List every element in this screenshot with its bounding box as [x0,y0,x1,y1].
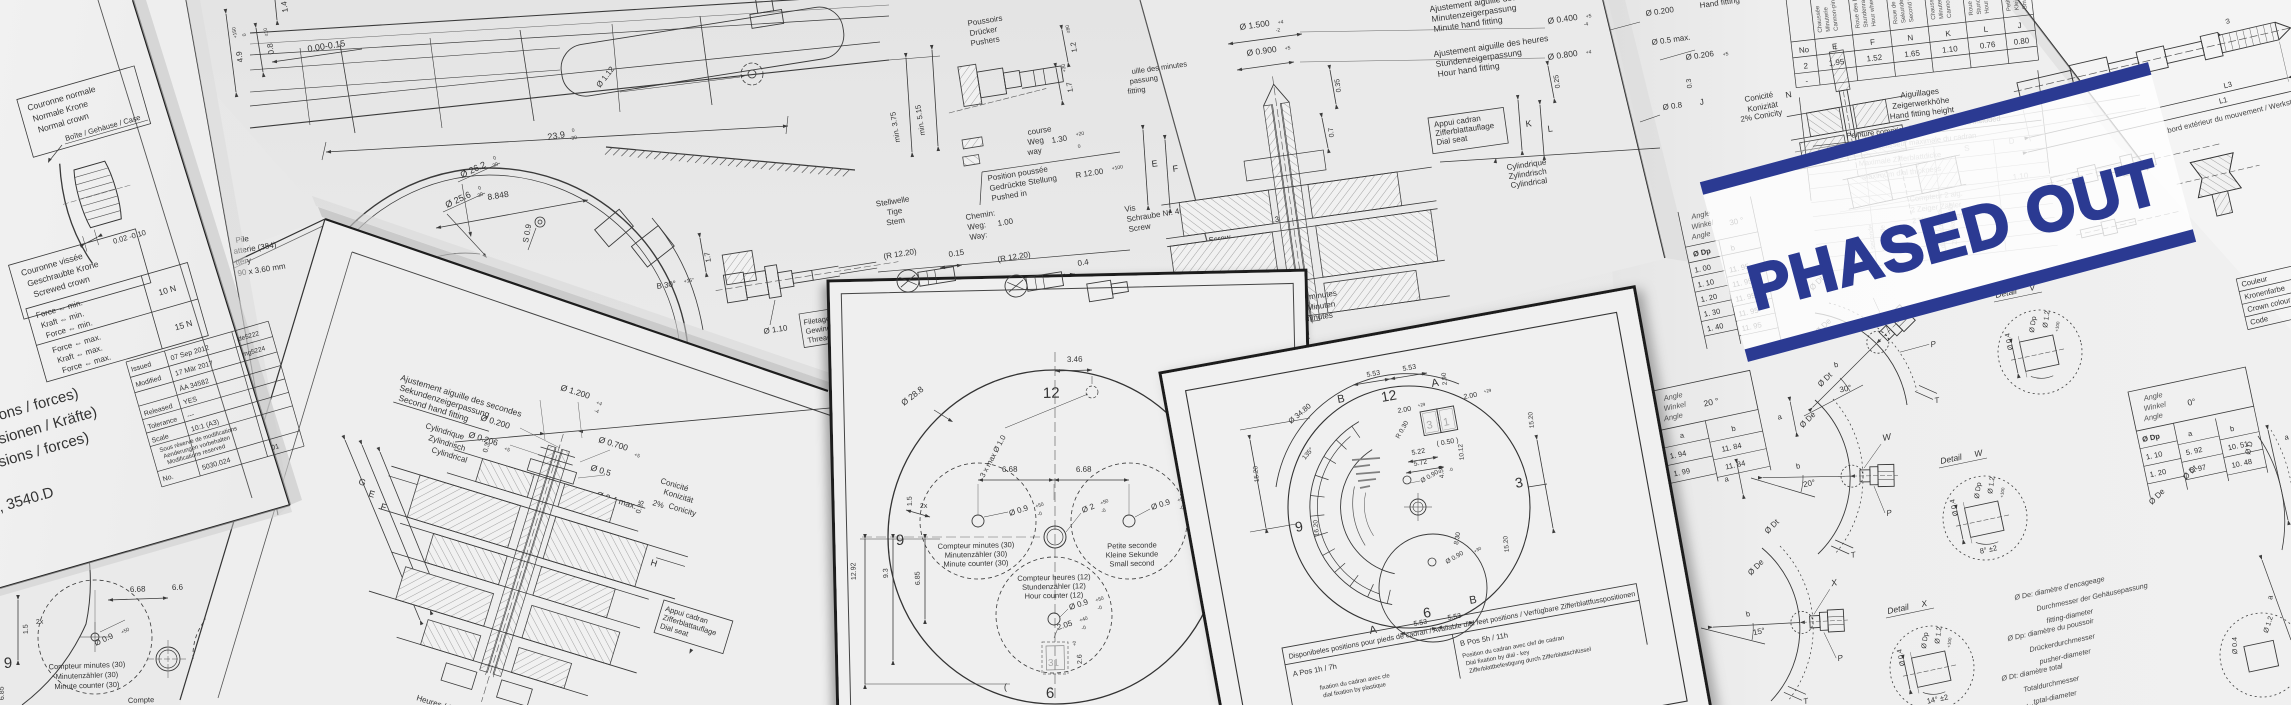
svg-text:9: 9 [896,532,905,549]
svg-text:1.52: 1.52 [1866,53,1883,64]
svg-text:Compte: Compte [128,695,155,705]
svg-text:12: 12 [1043,385,1060,402]
svg-text:4.9: 4.9 [234,50,245,63]
svg-text:E: E [1832,42,1838,52]
svg-text:Hour counter (12): Hour counter (12) [1024,590,1083,600]
svg-text:+4: +4 [1277,19,1284,26]
svg-text:Minute counter (30): Minute counter (30) [943,558,1009,568]
svg-text:2x: 2x [920,503,928,510]
svg-text:6.85: 6.85 [0,686,6,700]
svg-text:0.8: 0.8 [265,42,276,55]
svg-text:Small second: Small second [1109,558,1154,568]
svg-text:6.6: 6.6 [172,583,184,592]
svg-text:3.46: 3.46 [1067,355,1083,364]
svg-text:0.76: 0.76 [1979,40,1996,51]
svg-text:+5: +5 [1284,45,1291,52]
svg-text:1.10: 1.10 [1942,44,1959,55]
svg-text:9.3: 9.3 [883,568,890,578]
svg-text:0.80: 0.80 [2013,36,2030,47]
svg-text:1.95: 1.95 [1828,57,1845,68]
svg-text:6.68: 6.68 [1076,465,1092,474]
svg-text:2.6: 2.6 [1077,654,1084,664]
svg-text:(: ( [1004,682,1007,692]
svg-text:6.85: 6.85 [915,571,922,585]
svg-text:Vis: Vis [1124,203,1136,214]
svg-text:0.4: 0.4 [1077,257,1090,268]
svg-text:1.4: 1.4 [279,0,290,13]
svg-text:+4: +4 [1585,49,1592,56]
svg-text:12: 12 [1380,386,1398,405]
svg-text:+5: +5 [1585,13,1592,20]
svg-text:+5: +5 [1722,51,1729,58]
svg-text:No: No [1798,45,1810,55]
svg-text:1.5: 1.5 [23,624,30,634]
svg-text:1.65: 1.65 [1904,48,1921,59]
svg-text:0.3: 0.3 [1686,78,1694,89]
svg-text:6.68: 6.68 [1002,465,1018,474]
svg-text:Petite: Petite [2005,0,2013,11]
svg-text:Kleine: Kleine [2013,0,2021,10]
svg-text:0.7: 0.7 [1328,127,1336,138]
svg-text:Small: Small [2021,0,2029,10]
svg-text:1.7: 1.7 [1064,81,1075,93]
svg-text:2.90: 2.90 [1441,372,1449,386]
svg-text:31: 31 [1048,658,1060,669]
svg-text:Ø 0.4: Ø 0.4 [2232,637,2240,654]
svg-text:1.2: 1.2 [1068,41,1079,53]
svg-text:6.68: 6.68 [130,584,146,594]
svg-text:12.92: 12.92 [850,562,858,580]
svg-text:+0: +0 [1072,640,1077,646]
svg-text:2x: 2x [36,619,44,626]
svg-text:1.5: 1.5 [907,496,914,506]
svg-text:9: 9 [4,655,13,672]
svg-text:4.50: 4.50 [1438,465,1446,479]
svg-text:6: 6 [1046,685,1055,702]
